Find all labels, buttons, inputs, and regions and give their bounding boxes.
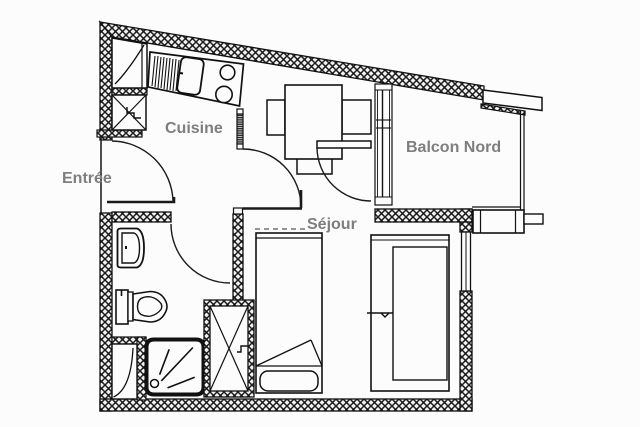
svg-text:Cuisine: Cuisine bbox=[165, 120, 223, 137]
svg-text:Balcon Nord: Balcon Nord bbox=[406, 139, 501, 156]
svg-text:Séjour: Séjour bbox=[307, 216, 357, 233]
svg-text:Entrée: Entrée bbox=[62, 170, 112, 187]
